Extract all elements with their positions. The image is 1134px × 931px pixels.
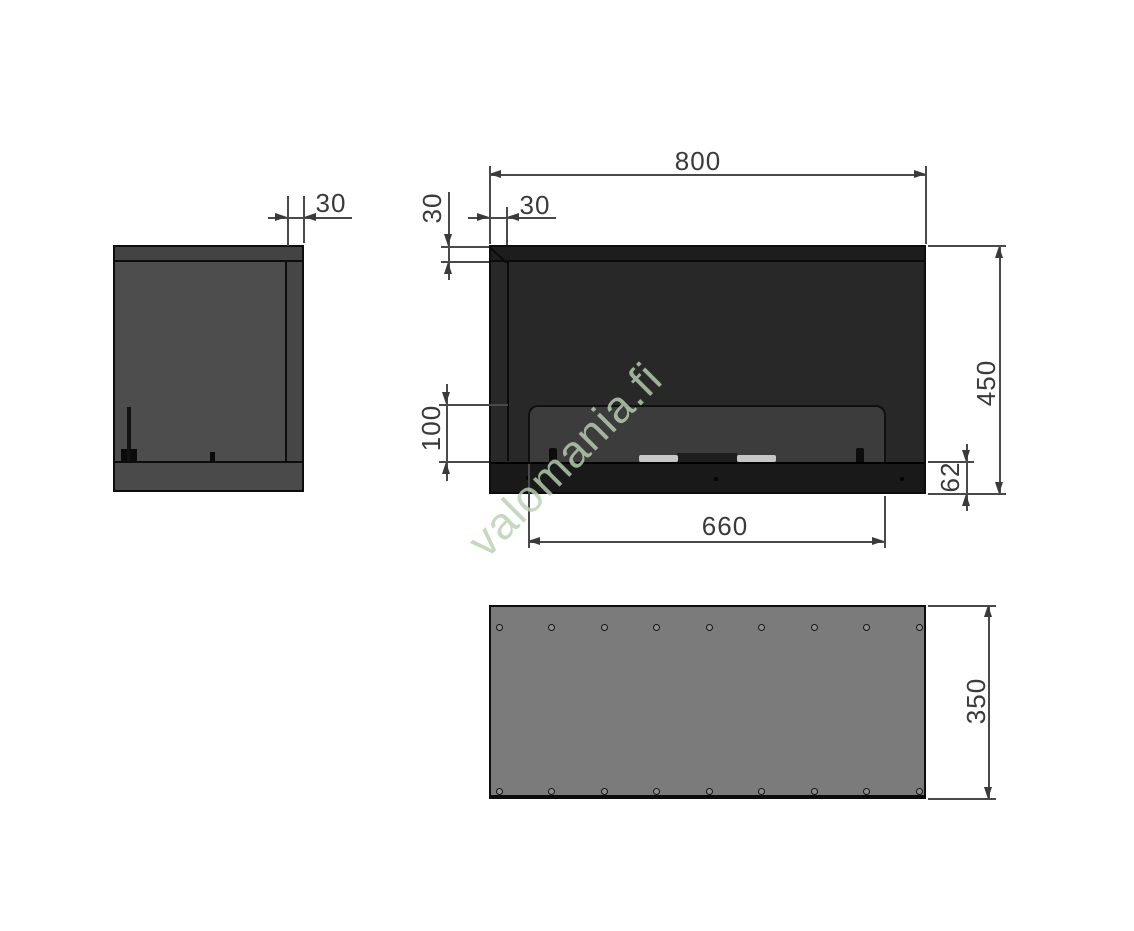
mounting-hole [758,788,765,795]
glass-clip [856,448,864,462]
mounting-hole [653,788,660,795]
mounting-hole [916,624,923,631]
front-left-frame-line [507,262,509,461]
front-view [489,245,926,494]
mounting-hole [758,624,765,631]
dim-label-front-panel-depth: 30 [291,190,371,216]
mounting-hole [548,788,555,795]
mounting-hole [601,624,608,631]
dim-label-overall-height: 450 [973,343,999,423]
mounting-hole [916,788,923,795]
mounting-hole [706,788,713,795]
mounting-hole [653,624,660,631]
side-base-panel [115,461,302,490]
burner-foot [130,449,137,461]
mounting-hole [811,788,818,795]
dim-label-overall-width: 800 [658,148,738,174]
mounting-hole [496,624,503,631]
side-view [113,245,304,492]
dim-label-overall-depth: 350 [963,661,989,741]
front-base-panel [491,462,924,492]
dim-label-glass-opening-height: 100 [418,388,444,468]
dim-label-base-height: 62 [937,437,963,517]
mounting-hole [496,788,503,795]
mounting-hole [548,624,555,631]
burner-rail [639,455,678,462]
mounting-hole [863,624,870,631]
side-top-panel [115,247,302,262]
burner-rail [737,455,776,462]
mounting-hole [601,788,608,795]
top-view-holes [491,607,924,795]
dim-label-left-frame-width: 30 [495,192,575,218]
front-top-frame [491,247,924,262]
mounting-hole [863,788,870,795]
screw-dot [900,477,904,481]
burner-foot [121,449,127,461]
dim-label-opening-width: 660 [685,513,765,539]
mounting-hole [706,624,713,631]
side-front-panel-strip [285,262,302,461]
top-view [489,605,926,799]
mounting-hole [811,624,818,631]
technical-drawing: 800 30 30 30 450 [0,0,1134,931]
screw-dot [714,477,718,481]
glass-clip [549,448,557,462]
burner-foot [210,452,215,461]
dim-label-top-frame-height: 30 [419,168,445,248]
burner-slot [677,453,737,462]
